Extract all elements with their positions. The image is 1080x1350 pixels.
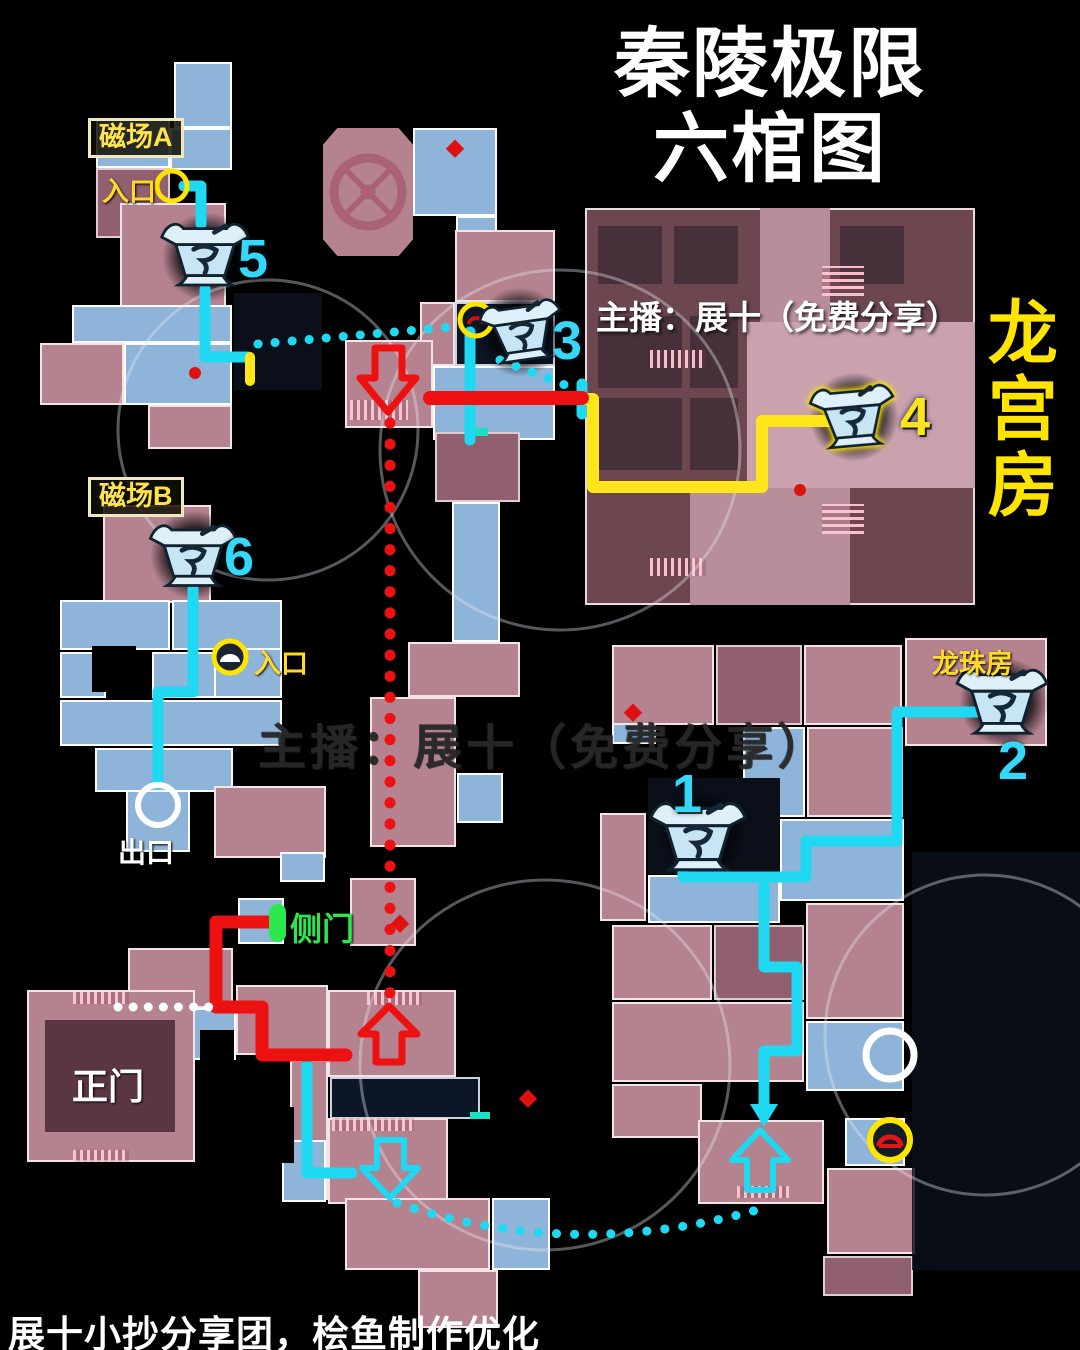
red-down-arrow [360,348,416,412]
routes-overlay [0,0,1080,1350]
dome-marker [870,1120,910,1160]
map-title: 秦陵极限 六棺图 [545,22,995,192]
entrance-b-label: 入口 [254,642,308,681]
cyan-dotted-route [397,1203,757,1234]
side-door-marker [269,904,286,942]
cyan-dotted-route [258,326,462,344]
map-canvas: 5 3 4 6 1 2 磁场A 入口 磁场B 入口 出口 侧门 正门 龙珠房 秦… [0,0,1080,1350]
entrance-a-label: 入口 [102,170,156,209]
teal-marker [470,1112,490,1119]
coffin-number-4: 4 [900,386,930,448]
dragon-pearl-room-label: 龙珠房 [932,642,1013,681]
magnetic-field-a-label: 磁场A [88,118,184,158]
coffin-number-2: 2 [998,730,1028,792]
coffin-icon-4 [805,374,901,458]
cyan-up-arrow [732,1130,788,1190]
watermark-text: 主播：展十（免费分享） [258,708,830,778]
map-title-line1: 秦陵极限 [545,22,995,107]
entrance-b-circle [214,641,246,673]
coffin-number-6: 6 [224,526,254,588]
exit-circle [138,785,178,825]
footer-credit: 展十小抄分享团，桧鱼制作优化 [8,1304,540,1350]
red-marker [189,140,806,1108]
magnetic-field-b-label: 磁场B [88,477,184,517]
red-up-arrow [361,1006,417,1062]
side-door-label: 侧门 [290,904,354,950]
coffin-number-1: 1 [672,763,702,825]
streamer-credit: 主播：展十（免费分享） [596,291,959,339]
map-title-line2: 六棺图 [545,107,995,192]
white-ring-marker [866,1031,914,1079]
cyan-arrowhead [750,1104,778,1127]
wheel-decoration [334,158,402,226]
exit-label: 出口 [118,831,174,871]
coffin-number-5: 5 [238,228,268,290]
yellow-route [250,357,836,487]
dragon-palace-room-label: 龙宫房 [980,296,1054,524]
coffin-number-3: 3 [552,310,582,372]
main-gate-label: 正门 [72,1058,144,1110]
